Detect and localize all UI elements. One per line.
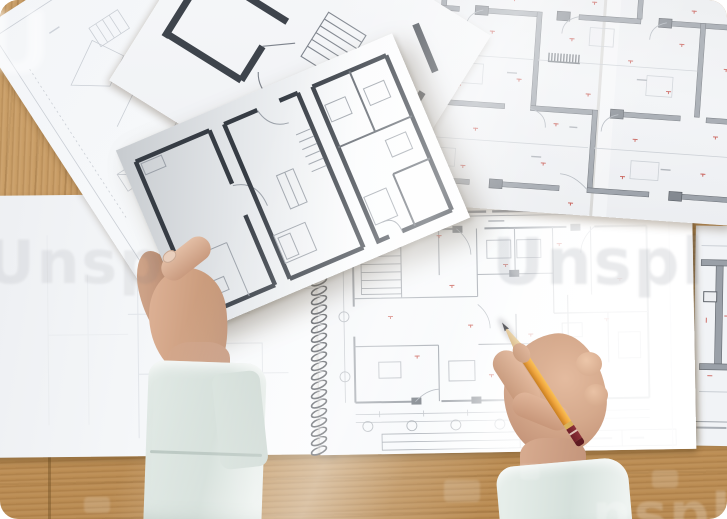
right-knuckle [584, 384, 608, 406]
spiral-coils [303, 266, 335, 456]
partial-floor-plan-drawing [692, 225, 727, 446]
right-sleeve-cuff [495, 456, 633, 519]
right-knuckle [576, 352, 602, 376]
spiral-binding [303, 266, 335, 456]
photo-architect-desk: U Unsp Unspl nspla [0, 0, 727, 519]
blueprint-sheet-far-right [692, 225, 727, 446]
